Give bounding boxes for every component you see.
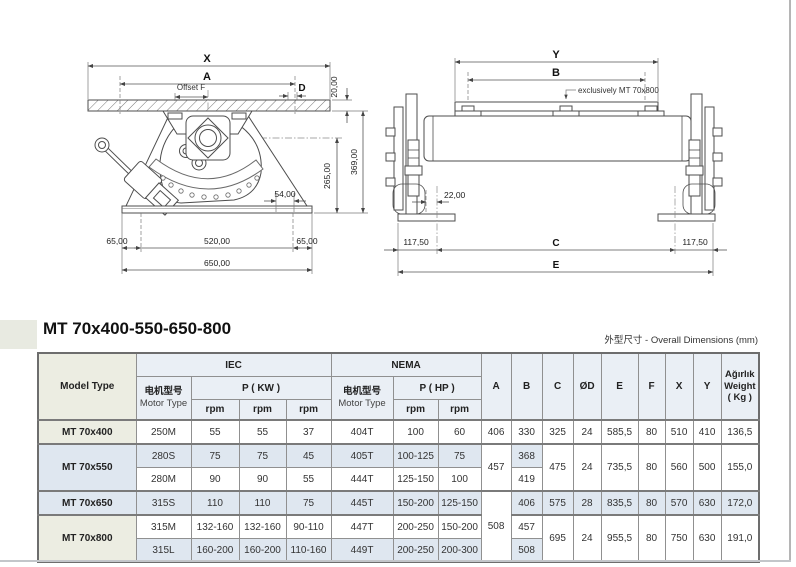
cell-hp2: 200-300 (438, 539, 481, 563)
cell-a: 406 (481, 420, 511, 444)
col-header-od: ØD (573, 353, 601, 420)
foot-right-dim: 117,50 (682, 237, 708, 247)
cell-e: 835,5 (601, 491, 638, 515)
cell-weight: 136,5 (721, 420, 759, 444)
cell-y: 630 (693, 515, 721, 562)
base-plate (122, 206, 312, 213)
motor-type-en: Motor Type (138, 398, 190, 410)
cell-hp1: 125-150 (393, 468, 438, 492)
table-row: MT 70x400 250M 55 55 37 404T 100 60 406 … (38, 420, 759, 444)
cell-e: 735,5 (601, 444, 638, 491)
cell-f: 80 (638, 515, 665, 562)
cell-od: 24 (573, 420, 601, 444)
weight-label-unit: ( Kg ) (723, 392, 758, 403)
base-right-dim: 65,00 (296, 236, 318, 246)
cell-y: 630 (693, 491, 721, 515)
cell-model: MT 70x550 (38, 444, 136, 491)
cell-od: 24 (573, 515, 601, 562)
cell-motor-iec: 315S (136, 491, 191, 515)
cell-kw3: 45 (286, 444, 331, 468)
cell-od: 24 (573, 444, 601, 491)
cell-kw3: 90-110 (286, 515, 331, 539)
exclusivity-note: exclusively MT 70x800 (578, 86, 659, 95)
cell-motor-iec: 280S (136, 444, 191, 468)
page-right-border (789, 0, 791, 561)
cell-x: 560 (665, 444, 693, 491)
motor-type-cn: 电机型号 (138, 386, 190, 398)
cell-motor-nema: 445T (331, 491, 393, 515)
weight-label-en: Weight (723, 381, 758, 392)
foot-left-dim: 117,50 (403, 237, 429, 247)
cell-b: 368 (511, 444, 542, 468)
cell-kw2: 132-160 (239, 515, 286, 539)
base-center-dim: 520,00 (204, 236, 230, 246)
cell-kw1: 75 (191, 444, 239, 468)
cell-x: 510 (665, 420, 693, 444)
dim-x-label: X (203, 53, 211, 65)
plate-thickness-dim: 20,00 (329, 76, 339, 98)
cell-b: 508 (511, 539, 542, 563)
cell-x: 750 (665, 515, 693, 562)
cell-kw1: 132-160 (191, 515, 239, 539)
cell-motor-nema: 447T (331, 515, 393, 539)
pivot-height-dim: 265,00 (322, 163, 332, 189)
cell-f: 80 (638, 491, 665, 515)
cell-motor-iec: 315M (136, 515, 191, 539)
col-header-y: Y (693, 353, 721, 420)
cell-y: 500 (693, 444, 721, 491)
col-header-motor-type-nema: 电机型号 Motor Type (331, 377, 393, 421)
cell-kw1: 110 (191, 491, 239, 515)
col-header-x: X (665, 353, 693, 420)
cell-motor-nema: 444T (331, 468, 393, 492)
cell-f: 80 (638, 444, 665, 491)
cell-kw3: 110-160 (286, 539, 331, 563)
col-header-rpm: rpm (438, 400, 481, 421)
col-header-e: E (601, 353, 638, 420)
overall-height-dim: 369,00 (349, 149, 359, 175)
col-header-rpm: rpm (286, 400, 331, 421)
cell-kw2: 110 (239, 491, 286, 515)
table-row: MT 70x800 315M 132-160 132-160 90-110 44… (38, 515, 759, 539)
cell-hp2: 75 (438, 444, 481, 468)
cell-kw3: 55 (286, 468, 331, 492)
base-left-dim: 65,00 (106, 236, 128, 246)
cell-b: 419 (511, 468, 542, 492)
dim-c-label: C (552, 238, 559, 249)
table-row: MT 70x550 280S 75 75 45 405T 100-125 75 … (38, 444, 759, 468)
cell-f: 80 (638, 420, 665, 444)
col-header-rpm: rpm (393, 400, 438, 421)
cell-e: 955,5 (601, 515, 638, 562)
page-bottom-border (0, 560, 791, 562)
cell-a: 508 (481, 491, 511, 562)
cell-kw3: 37 (286, 420, 331, 444)
cell-c: 575 (542, 491, 573, 515)
roller-body (424, 116, 691, 161)
col-header-rpm: rpm (191, 400, 239, 421)
col-header-b: B (511, 353, 542, 420)
cell-motor-iec: 315L (136, 539, 191, 563)
col-header-p-hp: P ( HP ) (393, 377, 481, 400)
motor-type-cn: 电机型号 (333, 386, 392, 398)
motor-type-en: Motor Type (333, 398, 392, 410)
col-header-iec: IEC (136, 353, 331, 377)
cell-hp1: 200-250 (393, 515, 438, 539)
dim-d-label: D (298, 83, 305, 94)
cell-kw2: 55 (239, 420, 286, 444)
col-header-model-type: Model Type (38, 353, 136, 420)
cell-b: 330 (511, 420, 542, 444)
dim-a-label: A (203, 71, 211, 83)
cell-hp2: 100 (438, 468, 481, 492)
cell-motor-nema: 449T (331, 539, 393, 563)
cell-kw2: 75 (239, 444, 286, 468)
col-header-f: F (638, 353, 665, 420)
cell-weight: 172,0 (721, 491, 759, 515)
cell-c: 325 (542, 420, 573, 444)
cell-hp1: 100-125 (393, 444, 438, 468)
dim-y-label: Y (552, 49, 560, 61)
cell-kw1: 160-200 (191, 539, 239, 563)
overall-dimensions-note: 外型尺寸 - Overall Dimensions (mm) (0, 332, 758, 346)
cell-kw1: 90 (191, 468, 239, 492)
dim-b-label: B (552, 67, 560, 79)
table-plate (88, 100, 330, 111)
cell-hp2: 125-150 (438, 491, 481, 515)
col-header-a: A (481, 353, 511, 420)
cell-motor-iec: 280M (136, 468, 191, 492)
col-header-rpm: rpm (239, 400, 286, 421)
cell-hp2: 60 (438, 420, 481, 444)
cell-model: MT 70x650 (38, 491, 136, 515)
weight-label-tr: Ağırlık (723, 369, 758, 380)
base-total-dim: 650,00 (204, 258, 230, 268)
cell-kw2: 160-200 (239, 539, 286, 563)
cell-b: 406 (511, 491, 542, 515)
cell-kw3: 75 (286, 491, 331, 515)
cell-kw1: 55 (191, 420, 239, 444)
side-view-drawing: Y B exclusively MT 70x800 (384, 49, 727, 276)
cell-model: MT 70x400 (38, 420, 136, 444)
cell-c: 695 (542, 515, 573, 562)
col-header-motor-type-iec: 电机型号 Motor Type (136, 377, 191, 421)
cell-c: 475 (542, 444, 573, 491)
cell-motor-nema: 404T (331, 420, 393, 444)
slot-width-dim: 54,00 (274, 189, 296, 199)
cell-a: 457 (481, 444, 511, 491)
cell-hp1: 100 (393, 420, 438, 444)
cell-hp2: 150-200 (438, 515, 481, 539)
table-row: MT 70x650 315S 110 110 75 445T 150-200 1… (38, 491, 759, 515)
offset-f-label: Offset F (177, 83, 205, 92)
col-header-nema: NEMA (331, 353, 481, 377)
col-header-c: C (542, 353, 573, 420)
cell-weight: 191,0 (721, 515, 759, 562)
cell-b: 457 (511, 515, 542, 539)
col-header-weight: Ağırlık Weight ( Kg ) (721, 353, 759, 420)
cell-x: 570 (665, 491, 693, 515)
cell-kw2: 90 (239, 468, 286, 492)
table-bar (455, 102, 658, 111)
front-view-drawing: X A Offset F D 20,00 369,00 265,00 (88, 53, 368, 274)
cell-weight: 155,0 (721, 444, 759, 491)
dimensions-table: Model Type IEC NEMA A B C ØD E F X Y Ağı… (37, 352, 760, 563)
cell-y: 410 (693, 420, 721, 444)
cell-motor-nema: 405T (331, 444, 393, 468)
foot-offset-dim: 22,00 (444, 190, 466, 200)
cell-hp1: 200-250 (393, 539, 438, 563)
dim-e-label: E (553, 260, 560, 271)
cell-motor-iec: 250M (136, 420, 191, 444)
col-header-p-kw: P ( KW ) (191, 377, 331, 400)
cell-od: 28 (573, 491, 601, 515)
cell-e: 585,5 (601, 420, 638, 444)
cell-model: MT 70x800 (38, 515, 136, 562)
technical-drawings: X A Offset F D 20,00 369,00 265,00 (0, 0, 796, 312)
cell-hp1: 150-200 (393, 491, 438, 515)
